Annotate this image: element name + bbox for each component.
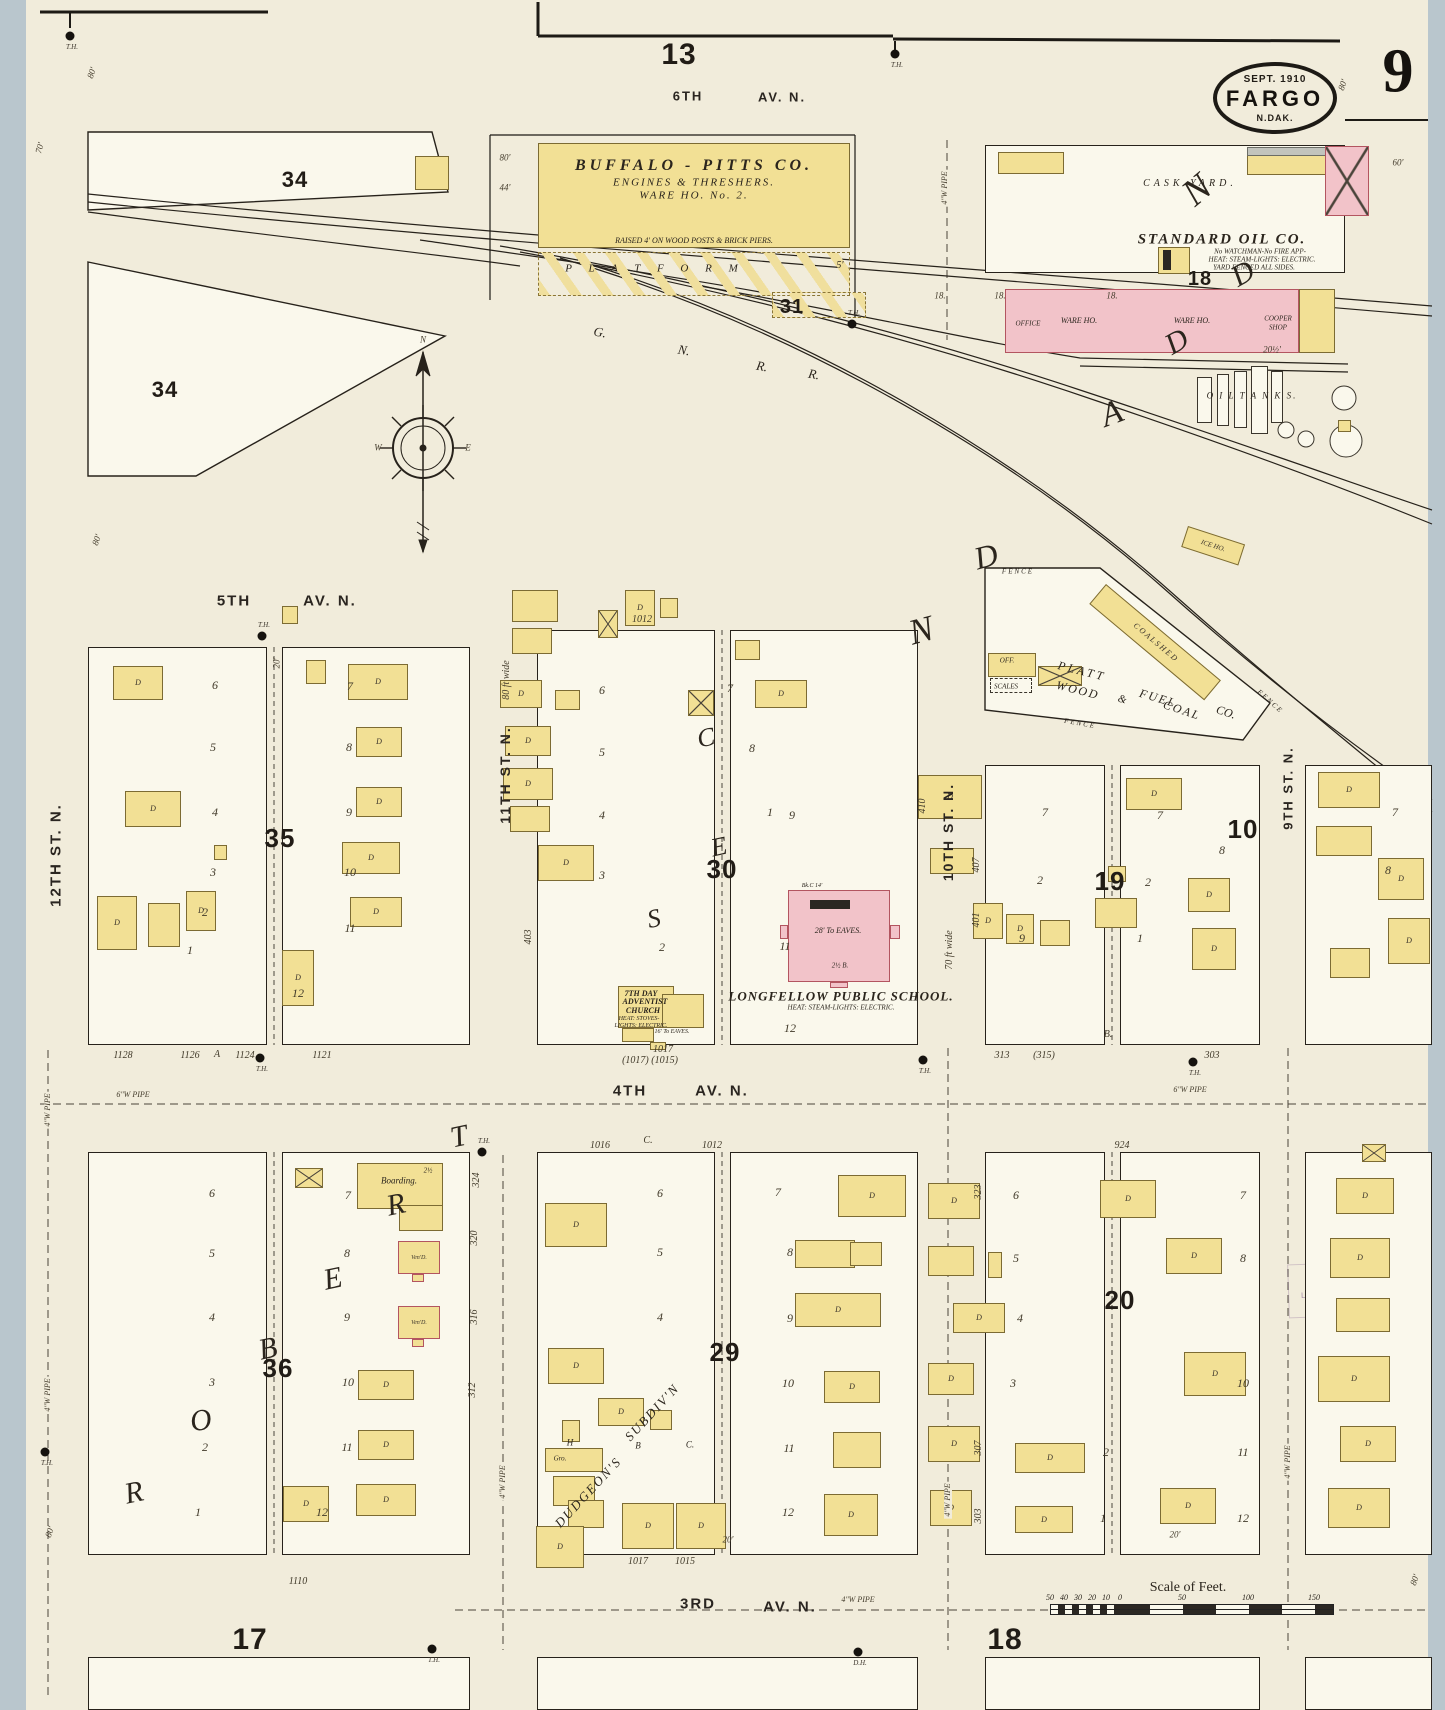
map-label-bl: OFFICE — [1016, 321, 1041, 328]
dwelling-footprint: D — [348, 664, 408, 700]
water-pipe-label: 6"W PIPE — [114, 1091, 151, 1099]
map-label-dim: 80' — [1337, 78, 1349, 91]
water-pipe-label: 4"W PIPE — [44, 1376, 52, 1413]
map-label-dim: 80' — [1409, 1573, 1421, 1586]
building-footprint — [214, 845, 227, 860]
building-label: D — [573, 1221, 579, 1229]
building-label: D — [1351, 1375, 1357, 1383]
building-footprint — [598, 610, 618, 638]
building-label: D — [1047, 1454, 1053, 1462]
building-footprint — [928, 1246, 974, 1276]
map-label-lot: 7 — [1042, 806, 1048, 818]
building-label: D — [518, 690, 524, 698]
scale-tick: 40 — [1060, 1593, 1068, 1602]
building-label: D — [375, 678, 381, 686]
map-label-lot: 6 — [212, 679, 218, 691]
hydrant-marker-label: T.H. — [891, 61, 903, 69]
dwelling-footprint: D — [356, 787, 402, 817]
map-label-lot: 1 — [1137, 932, 1143, 944]
map-canvas: SEPT. 1910 FARGO N.DAK. 9 Scale of Feet.… — [0, 0, 1445, 1710]
building-footprint — [850, 1242, 882, 1266]
map-label-block: 13 — [661, 40, 696, 70]
map-label-addr: 307 — [974, 1441, 984, 1456]
map-label-lot: 12 — [316, 1506, 328, 1518]
hydrant-marker — [428, 1645, 437, 1654]
building-footprint — [1299, 289, 1335, 353]
map-label-bl: CO. — [1215, 703, 1237, 720]
dwelling-footprint: D — [1330, 1238, 1390, 1278]
scale-tick: 20 — [1088, 1593, 1096, 1602]
building-label: D — [373, 908, 379, 916]
scale-bar-midline — [1051, 1609, 1333, 1610]
map-label-street: AV. N. — [758, 91, 806, 104]
map-label-lot: 2 — [1103, 1446, 1109, 1458]
map-label-lot: 9 — [789, 809, 795, 821]
building-label: D — [1041, 1516, 1047, 1524]
map-label-lot: 2 — [1037, 874, 1043, 886]
map-label-lot: 5 — [209, 1247, 215, 1259]
building-footprint — [662, 994, 704, 1028]
map-label-addr: 1121 — [312, 1051, 331, 1061]
map-label-bl: WARE HO. No. 2. — [639, 191, 748, 202]
scale-tick: 30 — [1074, 1593, 1082, 1602]
dwelling-footprint: D — [358, 1370, 414, 1400]
map-label-block: 20 — [1105, 1287, 1136, 1313]
scale-bar — [1050, 1604, 1334, 1615]
dwelling-footprint: D — [1160, 1488, 1216, 1524]
map-label-addr: C. — [643, 1136, 652, 1146]
building-footprint — [512, 628, 552, 654]
building-label: D — [951, 1197, 957, 1205]
map-label-bl: WOOD — [1055, 679, 1101, 701]
map-label-lot: 8 — [344, 1247, 350, 1259]
sheet-number: 9 — [1383, 37, 1414, 108]
map-label-lot: 7 — [345, 1189, 351, 1201]
building-label: D — [295, 974, 301, 982]
map-label-lot: 2 — [1145, 876, 1151, 888]
city-block — [985, 1657, 1260, 1710]
map-label-bl: B — [635, 1442, 641, 1451]
map-label-block: 18 — [987, 1625, 1022, 1655]
map-label-dim: 80' — [500, 154, 511, 163]
map-label-dim: 80' — [86, 66, 98, 79]
building-footprint: C O A L S H E D — [1089, 584, 1221, 700]
map-label-block: 19 — [1095, 868, 1126, 894]
map-label-big: T — [448, 1121, 471, 1154]
building-footprint — [780, 925, 788, 939]
map-label-lot: 11 — [341, 1441, 352, 1453]
map-label-lot: 4 — [599, 809, 605, 821]
hydrant-marker-label: T.H. — [66, 43, 78, 51]
building-label: D — [948, 1375, 954, 1383]
map-label-dim: 80' — [44, 1525, 56, 1538]
sanborn-map-sheet: SEPT. 1910 FARGO N.DAK. 9 Scale of Feet.… — [0, 0, 1445, 1710]
map-label-addr: (315) — [1033, 1051, 1055, 1061]
map-label-addr: 1124 — [235, 1051, 254, 1061]
map-label-lot: 10 — [344, 866, 356, 878]
map-label-lot: 12 — [1237, 1512, 1249, 1524]
building-footprint — [830, 982, 848, 988]
building-footprint — [555, 690, 580, 710]
map-label-addr: 1110 — [289, 1577, 308, 1587]
dwelling-footprint: D — [1166, 1238, 1222, 1274]
dwelling-footprint: D — [1328, 1488, 1390, 1528]
map-label-bl: 2½ B. — [832, 963, 849, 970]
building-footprint — [1338, 420, 1351, 432]
map-label-lot: 2 — [202, 1441, 208, 1453]
map-label-street: 12TH ST. N. — [49, 803, 64, 907]
dwelling-footprint: D — [545, 1203, 607, 1247]
building-footprint — [1330, 948, 1370, 978]
map-label-dim: 80' — [91, 533, 103, 546]
building-label: D — [383, 1441, 389, 1449]
water-pipe-label: 4"W PIPE — [941, 169, 949, 206]
building-label: D — [1151, 790, 1157, 798]
dwelling-footprint: D — [1188, 878, 1230, 912]
map-label-lot: 4 — [209, 1311, 215, 1323]
map-label-addr: 320 — [470, 1231, 480, 1246]
hydrant-marker-label: T.H. — [919, 1067, 931, 1075]
hydrant-marker-label: T.H. — [478, 1137, 490, 1145]
building-label: D — [1406, 937, 1412, 945]
map-label-bl: LONGFELLOW PUBLIC SCHOOL. — [728, 990, 953, 1003]
title-oval: SEPT. 1910 FARGO N.DAK. — [1213, 62, 1337, 134]
water-pipe-label: 4"W PIPE — [839, 1596, 876, 1604]
dwelling-footprint: D — [125, 791, 181, 827]
map-label-bl: OFF. — [1000, 658, 1014, 665]
map-label-bl: WARE HO. — [1061, 317, 1097, 325]
building-label: D — [1357, 1254, 1363, 1262]
building-label: D — [637, 604, 643, 612]
building-footprint — [282, 606, 298, 624]
building-footprint — [890, 925, 900, 939]
dwelling-footprint: D — [676, 1503, 726, 1549]
building-footprint — [510, 806, 550, 832]
building-label: D — [135, 679, 141, 687]
building-label: D — [869, 1192, 875, 1200]
dwelling-footprint: D — [548, 1348, 604, 1384]
map-label-lot: 12 — [784, 1022, 796, 1034]
dwelling-footprint: D — [1192, 928, 1236, 970]
hydrant-marker — [66, 32, 75, 41]
map-label-addr: 401 — [972, 913, 982, 928]
map-label-lot: 11 — [344, 922, 355, 934]
dwelling-footprint: D — [1100, 1180, 1156, 1218]
hydrant-marker — [41, 1448, 50, 1457]
building-label: D — [150, 805, 156, 813]
building-label: D — [1185, 1502, 1191, 1510]
building-footprint: Ven'D. — [398, 1306, 440, 1339]
dwelling-footprint: D — [795, 1293, 881, 1327]
hydrant-marker — [256, 1054, 265, 1063]
building-footprint — [306, 660, 326, 684]
building-label: D — [976, 1314, 982, 1322]
map-label-bl: & — [1117, 694, 1128, 707]
building-label: D — [1356, 1504, 1362, 1512]
map-label-lot: 7 — [1240, 1189, 1246, 1201]
map-label-addr: (1017) (1015) — [622, 1056, 678, 1066]
dwelling-footprint: D — [538, 845, 594, 881]
water-pipe-label: 4"W PIPE — [499, 1463, 507, 1500]
map-label-addr: 407 — [972, 858, 982, 873]
hydrant-marker — [854, 1648, 863, 1657]
building-footprint: Ven'D. — [398, 1241, 440, 1274]
map-label-addr: 1128 — [113, 1051, 132, 1061]
building-footprint — [810, 900, 850, 909]
map-label-addr: 1012 — [702, 1141, 722, 1151]
map-label-bl: O I L T A N K S. — [1207, 392, 1298, 401]
map-label-lot: 3 — [210, 866, 216, 878]
map-label-dim: 70' — [34, 142, 46, 155]
map-label-lot: 5 — [657, 1246, 663, 1258]
building-label: D — [848, 1511, 854, 1519]
map-label-lot: 2 — [659, 941, 665, 953]
map-label-block: 35 — [265, 825, 296, 851]
map-label-lot: 8 — [1385, 864, 1391, 876]
map-label-bl: R. — [755, 359, 768, 374]
map-label-bl: CHURCH — [626, 1007, 660, 1015]
map-label-dim: 18. — [994, 292, 1005, 301]
map-label-street: 4TH — [613, 1084, 647, 1099]
building-label: D — [1362, 1192, 1368, 1200]
building-label: D — [985, 917, 991, 925]
building-label: Ven'D. — [411, 1320, 427, 1326]
building-footprint — [622, 1028, 654, 1042]
map-label-addr: 1012 — [632, 615, 652, 625]
map-label-street: AV. N. — [695, 1084, 749, 1099]
map-label-lot: 10 — [782, 1377, 794, 1389]
scale-tick: 0 — [1118, 1593, 1122, 1602]
map-label-lot: 1 — [195, 1506, 201, 1518]
map-label-addr: 403 — [524, 930, 534, 945]
map-label-bl: G. — [593, 325, 608, 340]
building-label: D — [778, 690, 784, 698]
map-label-lot: 9 — [1019, 932, 1025, 944]
map-label-street: AV. N. — [303, 594, 357, 609]
title-state: N.DAK. — [1257, 113, 1294, 123]
map-label-dim: E — [465, 444, 471, 453]
scale-tick: 150 — [1308, 1593, 1320, 1602]
map-label-block: 29 — [710, 1339, 741, 1365]
map-label-addr: 323 — [974, 1185, 984, 1200]
map-label-lot: 10 — [1237, 1377, 1249, 1389]
city-block — [88, 647, 267, 1045]
map-label-bl: 28' To EAVES. — [815, 927, 862, 935]
map-label-addr: 324 — [472, 1173, 482, 1188]
map-label-block: 34 — [152, 379, 178, 401]
dwelling-footprint: D — [97, 896, 137, 950]
map-label-dim: 44' — [500, 184, 511, 193]
map-label-block: 34 — [282, 169, 308, 191]
building-label: D — [376, 798, 382, 806]
hydrant-marker — [919, 1056, 928, 1065]
building-label: D — [383, 1381, 389, 1389]
map-label-lot: 7 — [775, 1186, 781, 1198]
building-footprint — [1005, 289, 1299, 353]
water-pipe-label: 4"W PIPE — [1284, 1443, 1292, 1480]
building-label: D — [383, 1496, 389, 1504]
map-label-block: 10 — [1228, 816, 1259, 842]
hydrant-marker — [478, 1148, 487, 1157]
scale-tick: 10 — [1102, 1593, 1110, 1602]
building-label: D — [835, 1306, 841, 1314]
map-label-dim: 18. — [1106, 292, 1117, 301]
hydrant-marker — [258, 632, 267, 641]
map-label-bl: C. — [686, 1441, 694, 1450]
map-label-dim: 70 ft wide — [945, 930, 955, 969]
map-label-lot: 4 — [212, 806, 218, 818]
map-label-street: 5TH — [217, 594, 251, 609]
scale-tick: 50 — [1178, 1593, 1186, 1602]
map-label-bl: Bk.C 14' — [802, 883, 823, 889]
hydrant-marker-label: T.H. — [258, 621, 270, 629]
dwelling-footprint: D — [1318, 772, 1380, 808]
building-footprint: ICE HO. — [1181, 526, 1245, 565]
map-label-bl: P L A T F O R M — [565, 264, 744, 275]
hydrant-marker-label: T.H. — [256, 1065, 268, 1073]
water-pipe-label: 4"W PIPE — [944, 1481, 952, 1518]
building-footprint — [988, 1252, 1002, 1278]
dwelling-footprint: D — [824, 1494, 878, 1536]
map-label-lot: 3 — [1010, 1377, 1016, 1389]
map-label-bl: FENCE — [1256, 689, 1285, 716]
building-label: D — [1125, 1195, 1131, 1203]
map-label-lot: 6 — [209, 1187, 215, 1199]
building-footprint — [998, 152, 1064, 174]
map-label-big: D — [971, 538, 1002, 575]
hydrant-marker-label: T.H. — [848, 309, 860, 317]
building-footprint — [1362, 1144, 1386, 1162]
map-label-bl: COAL — [1162, 698, 1203, 721]
building-footprint — [1325, 146, 1369, 216]
map-label-bl: RAISED 4' ON WOOD POSTS & BRICK PIERS. — [615, 237, 773, 245]
building-label: D — [525, 737, 531, 745]
building-footprint — [148, 903, 180, 947]
city-block — [1305, 1657, 1432, 1710]
map-label-street: 3RD — [680, 1597, 716, 1612]
building-footprint — [1336, 1298, 1390, 1332]
map-label-lot: 6 — [657, 1187, 663, 1199]
map-label-lot: 7 — [1392, 806, 1398, 818]
map-label-bl: ENGINES & THRESHERS. — [613, 178, 775, 189]
map-label-addr: 1017 — [628, 1557, 648, 1567]
map-label-dim: 20½' — [1263, 346, 1281, 355]
dwelling-footprint: D — [838, 1175, 906, 1217]
building-label: D — [849, 1383, 855, 1391]
map-label-lot: 7 — [1157, 809, 1163, 821]
map-label-lot: 11 — [783, 1442, 794, 1454]
map-label-street: 9TH ST. N. — [1282, 746, 1295, 830]
building-footprint — [295, 1168, 323, 1188]
map-label-bl: N. — [677, 343, 691, 358]
building-label: D — [557, 1543, 563, 1551]
map-label-lot: 8 — [346, 741, 352, 753]
compass-rose-icon — [380, 352, 466, 552]
map-label-lot: 2 — [202, 906, 208, 918]
building-label: C O A L S H E D — [1132, 622, 1179, 663]
scale-title: Scale of Feet. — [1150, 1580, 1227, 1596]
map-label-lot: 10 — [342, 1376, 354, 1388]
map-label-lot: 4 — [1017, 1312, 1023, 1324]
hydrant-marker-label: T.H. — [1189, 1069, 1201, 1077]
map-label-dim: N — [420, 336, 426, 345]
map-label-lot: 9 — [346, 806, 352, 818]
title-date: SEPT. 1910 — [1244, 74, 1307, 85]
map-label-street: 10TH ST. N. — [941, 783, 955, 881]
hydrant-marker-label: T.H. — [428, 1656, 440, 1664]
building-label: D — [1365, 1440, 1371, 1448]
dwelling-footprint: D — [1388, 918, 1430, 964]
building-footprint — [412, 1339, 424, 1347]
building-footprint — [1163, 250, 1171, 270]
map-label-addr: 303 — [974, 1509, 984, 1524]
map-label-block: 17 — [232, 1625, 267, 1655]
map-label-addr: 303 — [1205, 1051, 1220, 1061]
map-label-lot: 7 — [347, 680, 353, 692]
map-label-lot: 8 — [1219, 844, 1225, 856]
building-footprint — [1095, 898, 1137, 928]
map-label-lot: 8 — [1240, 1252, 1246, 1264]
building-label: D — [951, 1440, 957, 1448]
dwelling-footprint: D — [536, 1526, 584, 1568]
building-label: D — [303, 1500, 309, 1508]
dwelling-footprint: D — [113, 666, 163, 700]
building-label: D — [376, 738, 382, 746]
building-footprint — [412, 1274, 424, 1282]
dwelling-footprint: D — [356, 727, 402, 757]
map-label-lot: 3 — [209, 1376, 215, 1388]
map-label-lot: 5 — [210, 741, 216, 753]
building-footprint — [1040, 920, 1070, 946]
map-label-bl: HEAT: STOVES- — [619, 1016, 660, 1022]
map-label-addr: 312 — [468, 1383, 478, 1398]
map-label-bl: ADVENTIST — [623, 998, 668, 1006]
map-label-lot: 7 — [727, 682, 733, 694]
map-label-lot: 8 — [787, 1246, 793, 1258]
building-label: Ven'D. — [411, 1255, 427, 1261]
dwelling-footprint: D — [358, 1430, 414, 1460]
map-label-dim: W — [374, 444, 382, 453]
building-label: D — [1398, 875, 1404, 883]
map-label-bl: BUFFALO - PITTS CO. — [575, 158, 813, 174]
map-label-big: A — [1096, 394, 1127, 433]
building-label: D — [368, 854, 374, 862]
building-label: D — [1211, 945, 1217, 953]
building-label: D — [1346, 786, 1352, 794]
map-label-addr: 1126 — [180, 1051, 199, 1061]
map-label-lot: 4 — [657, 1311, 663, 1323]
building-label: D — [645, 1522, 651, 1530]
building-label: D — [1191, 1252, 1197, 1260]
map-label-addr: B. — [1104, 1030, 1113, 1040]
scale-tick: 100 — [1242, 1593, 1254, 1602]
map-label-bl: HEAT: STEAM-LIGHTS: ELECTRIC. — [788, 1005, 895, 1012]
map-label-addr: 316 — [470, 1310, 480, 1325]
building-label: D — [563, 859, 569, 867]
dwelling-footprint: D — [350, 897, 402, 927]
map-label-bl: SCALES — [994, 684, 1018, 691]
map-label-lot: 1 — [767, 806, 773, 818]
building-footprint — [1316, 826, 1372, 856]
map-label-block: 18 — [1188, 269, 1212, 289]
building-label: D — [1212, 1370, 1218, 1378]
map-label-bl: Boarding. — [381, 1177, 417, 1186]
map-label-addr: 1016 — [590, 1141, 610, 1151]
map-label-lot: 1 — [187, 944, 193, 956]
building-label: D — [525, 780, 531, 788]
dwelling-footprint: D — [928, 1363, 974, 1395]
map-label-bl: HEAT: STEAM-LIGHTS: ELECTRIC. — [1209, 257, 1316, 264]
